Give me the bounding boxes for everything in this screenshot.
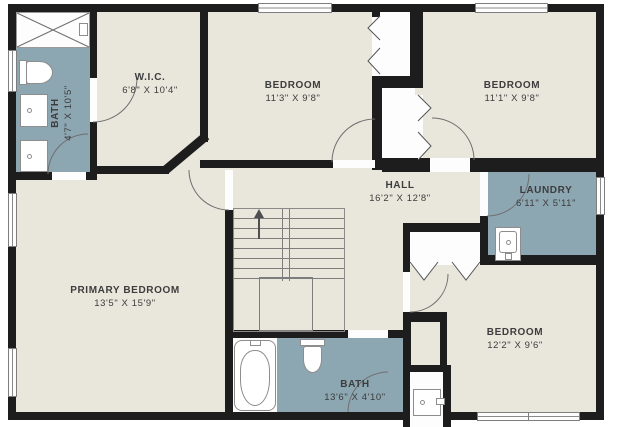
room-dims: 16'2" X 12'8"	[369, 192, 431, 205]
room-label-bath-lower: BATH 13'6" X 4'10"	[324, 378, 386, 404]
room-name: PRIMARY BEDROOM	[70, 284, 180, 297]
room-label-bedroom2: BEDROOM 11'1" X 9'8"	[484, 79, 540, 105]
door-arc-bedroom1	[332, 119, 375, 162]
room-label-bedroom1: BEDROOM 11'3" X 9'8"	[265, 79, 321, 105]
room-dims: 12'2" X 9'6"	[487, 339, 543, 352]
bifold-linen-b	[452, 262, 480, 280]
room-dims: 6'11" X 5'11"	[516, 197, 576, 210]
room-label-bath-upper: BATH 4'7" X 10'5"	[49, 85, 75, 141]
room-label-wic: W.I.C. 6'8" X 10'4"	[122, 71, 178, 97]
room-name: BEDROOM	[484, 79, 540, 92]
plan-linework	[0, 0, 640, 427]
door-arc-bedroom3	[410, 274, 448, 312]
room-dims: 4'7" X 10'5"	[62, 85, 75, 141]
room-name: HALL	[369, 179, 431, 192]
room-dims: 13'6" X 4'10"	[324, 391, 386, 404]
room-name: BATH	[49, 85, 62, 141]
room-dims: 13'5" X 15'9"	[70, 297, 180, 310]
door-arc-bedroom2	[432, 118, 474, 160]
room-name: BEDROOM	[487, 326, 543, 339]
floor-plan: BATH 4'7" X 10'5" W.I.C. 6'8" X 10'4" BE…	[0, 0, 640, 427]
shower-glass-x	[17, 13, 89, 47]
room-label-primary: PRIMARY BEDROOM 13'5" X 15'9"	[70, 284, 180, 310]
room-name: LAUNDRY	[516, 184, 576, 197]
room-name: BEDROOM	[265, 79, 321, 92]
bifold-closet2-a	[418, 95, 431, 121]
bifold-linen-a	[410, 262, 438, 280]
bifold-closet2-b	[418, 132, 431, 160]
bifold-closet1-b	[368, 48, 380, 74]
door-arc-primary	[189, 170, 229, 210]
room-name: BATH	[324, 378, 386, 391]
door-arcs	[48, 78, 529, 412]
room-name: W.I.C.	[122, 71, 178, 84]
room-dims: 6'8" X 10'4"	[122, 84, 178, 97]
room-label-hall: HALL 16'2" X 12'8"	[369, 179, 431, 205]
bifold-doors	[368, 16, 480, 280]
room-dims: 11'1" X 9'8"	[484, 92, 540, 105]
bifold-closet1-a	[368, 16, 380, 40]
room-label-bedroom3: BEDROOM 12'2" X 9'6"	[487, 326, 543, 352]
room-dims: 11'3" X 9'8"	[265, 92, 321, 105]
room-label-laundry: LAUNDRY 6'11" X 5'11"	[516, 184, 576, 210]
